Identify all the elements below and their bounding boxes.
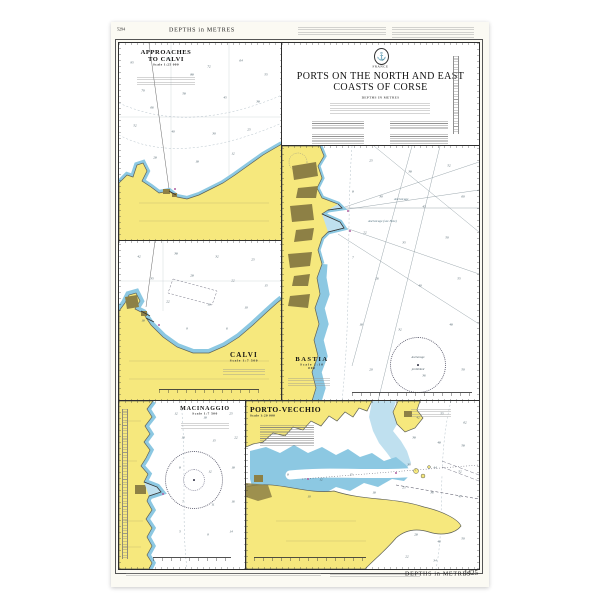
sounding-value: 45 (223, 97, 226, 100)
compass-rose-inner (183, 469, 205, 491)
anchor-icon: ⚓ (377, 52, 387, 61)
village-area (135, 485, 146, 494)
sounding-value: 12 (209, 470, 212, 473)
sounding-value: 55 (440, 413, 443, 416)
sounding-value: 16 (207, 303, 210, 306)
sounding-value: 38 (174, 252, 177, 255)
sounding-value: 10 (244, 307, 247, 310)
sounding-value: 22 (234, 436, 237, 439)
approaches-map-svg (119, 43, 282, 241)
sounding-value: 12 (319, 478, 322, 481)
border-ticks (282, 146, 284, 401)
sounding-value: 26 (375, 277, 378, 280)
sounding-value: 15 (264, 284, 267, 287)
sounding-value: 18 (142, 319, 145, 322)
sounding-value: 64 (240, 59, 243, 62)
sounding-value: 22 (405, 556, 408, 559)
sounding-value: 8 (287, 473, 289, 476)
panel-macinaggio: MACINAGGIO Scale 1:7 500 121825101522812… (118, 400, 247, 570)
buoy-symbol (395, 472, 397, 474)
sounding-value: 30 (212, 132, 215, 135)
border-ticks (282, 43, 479, 45)
sounding-value: 88 (191, 73, 194, 76)
note-block-2 (390, 121, 448, 130)
sounding-value: 5 (179, 530, 181, 533)
chart-title: PORTS ON THE NORTH AND EAST COASTS OF CO… (282, 71, 479, 93)
sounding-value: 20 (369, 369, 372, 372)
sounding-value: 40 (171, 130, 174, 133)
sounding-value: 32 (399, 328, 402, 331)
sounding-value: 38 (256, 101, 259, 104)
sounding-value: 36 (422, 374, 425, 377)
sounding-value: 48 (450, 323, 453, 326)
scale-bar (254, 557, 366, 561)
scale-ladder (453, 56, 459, 134)
note-block-4 (390, 134, 448, 144)
sounding-value: 52 (459, 470, 462, 473)
sounding-value: 25 (229, 413, 232, 416)
border-ticks (119, 43, 121, 241)
sounding-value: 28 (191, 275, 194, 278)
title-notes (330, 103, 430, 115)
note-block-1 (312, 121, 364, 130)
sounding-value: 72 (207, 65, 210, 68)
sounding-value: 22 (231, 279, 234, 282)
border-ticks (477, 43, 479, 146)
sounding-value: 80 (166, 57, 169, 60)
border-ticks (246, 401, 479, 403)
border-ticks (119, 241, 282, 243)
sounding-value: 15 (349, 473, 352, 476)
sounding-value: 58 (461, 445, 464, 448)
sounding-value: 25 (369, 160, 372, 163)
sounding-value: 10 (181, 436, 184, 439)
sounding-value: 18 (204, 416, 207, 419)
border-ticks (119, 401, 121, 569)
panel-bastia: Anchorage prohibited Anchorage Anchorage… (281, 145, 480, 402)
chart-number: 1425 (452, 569, 478, 577)
admiralty-crest-icon: ⚓ (374, 48, 389, 65)
islet (421, 474, 425, 478)
sounding-value: 48 (438, 441, 441, 444)
calvi-notes (223, 369, 265, 376)
sounding-value: 32 (215, 255, 218, 258)
sounding-value: 50 (462, 369, 465, 372)
sounding-value: 15 (213, 440, 216, 443)
prohibited-label-2: prohibited (405, 368, 432, 371)
sounding-value: 95 (130, 61, 133, 64)
islet (414, 469, 419, 474)
border-ticks (477, 146, 479, 401)
sounding-value: 40 (418, 285, 421, 288)
sounding-value: 55 (458, 277, 461, 280)
sounding-value: 7 (352, 257, 354, 260)
leading-line (146, 241, 155, 307)
note-block-3 (312, 134, 364, 144)
depth-contour (436, 401, 451, 569)
panel-calvi: CALVI Scale 1:7 500 42383225352822152216… (118, 240, 283, 402)
border-ticks (477, 401, 479, 569)
sounding-value: 18 (196, 160, 199, 163)
sounding-value: 50 (461, 537, 464, 540)
sounding-value: 25 (251, 259, 254, 262)
sounding-value: 8 (179, 467, 181, 470)
border-ticks (119, 241, 121, 401)
scale-bar (352, 392, 472, 396)
sounding-value: 38 (408, 170, 411, 173)
leading-line-dashed (396, 485, 479, 499)
town-area (163, 189, 170, 194)
sounding-value: 35 (150, 278, 153, 281)
sounding-value: 38 (412, 436, 415, 439)
sounding-value: 25 (403, 487, 406, 490)
border-ticks (246, 567, 479, 569)
sounding-value: 28 (153, 156, 156, 159)
sounding-value: 40 (438, 540, 441, 543)
sounding-value: 47 (459, 495, 462, 498)
sounding-value: 22 (166, 300, 169, 303)
sounding-value: 62 (463, 421, 466, 424)
sounding-value: 35 (402, 241, 405, 244)
islet (428, 466, 431, 469)
circle-center (417, 364, 419, 366)
sounding-value: 22 (363, 231, 366, 234)
sounding-value: 36 (431, 492, 434, 495)
sounding-value: 58 (183, 93, 186, 96)
sounding-value: 60 (462, 195, 465, 198)
depth-contour (342, 146, 352, 401)
porto-notes (260, 425, 314, 447)
bastia-notes (288, 378, 330, 386)
sounding-value: 52 (134, 125, 137, 128)
buoy-symbol (307, 478, 309, 480)
top-fineprint-right (392, 27, 474, 38)
sounding-value: 11 (211, 504, 214, 507)
nautical-chart-sheet: 5294 DEPTHS in METRES APPROACHES TO CALV… (0, 0, 600, 600)
scale-bar (153, 557, 231, 561)
sounding-value: 30 (407, 463, 410, 466)
sounding-value: 16 (232, 500, 235, 503)
buoy-symbol (347, 210, 349, 212)
sounding-value: 9 (207, 534, 209, 537)
sounding-value: 30 (379, 195, 382, 198)
top-depths-label: DEPTHS in METRES (152, 26, 252, 35)
border-ticks (119, 401, 246, 403)
corner-code: 5294 (117, 27, 131, 35)
sounding-value: 66 (150, 107, 153, 110)
sounding-value: 34 (433, 559, 436, 562)
anchorage-note-label: Anchorage (see Note) (368, 220, 397, 223)
border-ticks (119, 43, 282, 45)
sounding-value: 18 (359, 323, 362, 326)
sounding-value: 8 (352, 190, 354, 193)
border-ticks (246, 401, 248, 569)
sounding-value: 12 (231, 152, 234, 155)
bottom-fineprint-left (126, 573, 321, 578)
anchorage-prohibited-circle: Anchorage prohibited (390, 337, 446, 393)
sounding-value: 12 (174, 413, 177, 416)
sounding-value: 14 (229, 530, 232, 533)
approaches-notes (137, 77, 195, 85)
sounding-value: 18 (372, 492, 375, 495)
anchorage-area (168, 279, 217, 305)
sounding-value: 25 (248, 128, 251, 131)
panel-title-block: ⚓ FRANCE PORTS ON THE NORTH AND EAST COA… (281, 42, 480, 147)
sounding-value: 70 (142, 89, 145, 92)
sounding-value: 44 (433, 467, 436, 470)
border-ticks (282, 146, 479, 148)
calvi-title: CALVI Scale 1:7 500 (215, 351, 273, 365)
sounding-value: 55 (264, 73, 267, 76)
prohibited-label-1: Anchorage (405, 356, 432, 359)
porto-vecchio-title: PORTO-VECCHIO Scale 1:20 000 (250, 405, 342, 420)
town-area (254, 475, 263, 482)
sounding-value: 42 (137, 255, 140, 258)
sounding-value: 42 (417, 416, 420, 419)
macinaggio-notes (181, 423, 229, 430)
sounding-value: 45 (422, 206, 425, 209)
sounding-value: 10 (307, 495, 310, 498)
sounding-value: 7 (182, 500, 184, 503)
sounding-value: 18 (232, 467, 235, 470)
sounding-value: 52 (448, 165, 451, 168)
anchorage-label: Anchorage (394, 198, 408, 201)
latitude-ladder (122, 409, 128, 559)
top-fineprint-left (298, 27, 386, 36)
sounding-value: 6 (226, 327, 228, 330)
panel-approaches-to-calvi: APPROACHES TO CALVI Scale 1:25 000 95807… (118, 42, 283, 242)
scale-bar (159, 389, 259, 393)
panel-porto-vecchio: PORTO-VECCHIO Scale 1:20 000 42556238485… (245, 400, 480, 570)
bastia-title: BASTIA Scale 1:10 000 (286, 356, 338, 375)
sounding-value: 50 (446, 236, 449, 239)
citadel-area (125, 295, 139, 309)
sounding-value: 28 (414, 534, 417, 537)
title-subtitle: DEPTHS IN METRES (282, 96, 479, 102)
border-ticks (119, 567, 246, 569)
